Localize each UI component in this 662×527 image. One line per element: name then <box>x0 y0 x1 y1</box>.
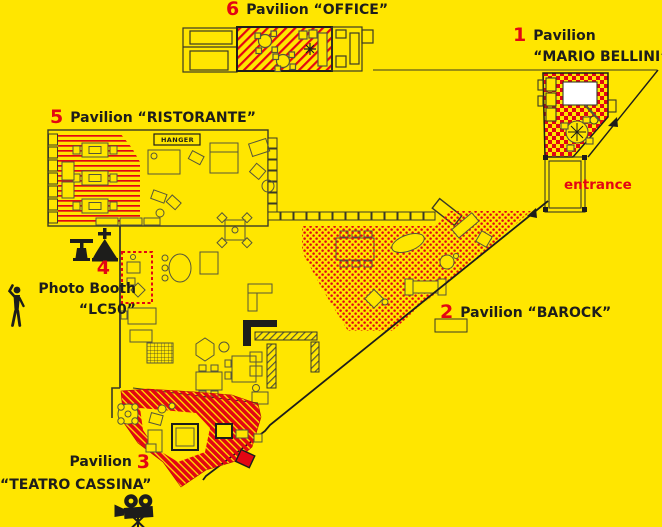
floor-plan-page: 6 Pavilion “OFFICE” 1 Pavilion “MARIO BE… <box>0 0 662 527</box>
pavilion-ristorante-title: Pavilion “RISTORANTE” <box>70 108 256 129</box>
pavilion-bellini-line1: Pavilion <box>533 26 662 47</box>
label-hanger: HANGER <box>155 135 200 145</box>
pavilion-bellini-title: Pavilion “MARIO BELLINI” <box>533 26 662 68</box>
pavilion-teatro-word: Pavilion <box>69 454 131 470</box>
photo-booth-line1: Photo Booth <box>20 279 136 300</box>
photo-booth-line2: “LC50” <box>20 300 136 321</box>
pavilion-bellini-number: 1 <box>513 26 526 45</box>
studio-lamp-icons <box>70 228 118 262</box>
label-entrance: entrance <box>564 177 632 193</box>
pavilion-ristorante-plan <box>58 133 274 248</box>
pavilion-teatro-name: “TEATRO CASSINA” <box>0 477 152 493</box>
pavilion-barock-number: 2 <box>440 303 453 322</box>
pavilion-barock-title: Pavilion “BAROCK” <box>460 303 611 324</box>
pavilion-bellini-line2: “MARIO BELLINI” <box>533 47 662 68</box>
label-pavilion-teatro-line2: “TEATRO CASSINA” <box>0 475 128 496</box>
label-pavilion-ristorante: 5 Pavilion “RISTORANTE” <box>50 108 256 129</box>
photo-booth-number-line: 4 <box>20 258 136 279</box>
pavilion-teatro-number: 3 <box>137 451 150 473</box>
label-photo-booth: 4 Photo Booth “LC50” <box>20 258 136 321</box>
label-pavilion-teatro-line1: Pavilion 3 <box>0 452 150 473</box>
film-camera-icon <box>115 494 154 527</box>
label-pavilion-barock: 2 Pavilion “BAROCK” <box>440 303 611 324</box>
label-pavilion-bellini: 1 Pavilion “MARIO BELLINI” <box>513 26 662 68</box>
pavilion-ristorante-number: 5 <box>50 108 63 127</box>
pavilion-office-number: 6 <box>226 0 239 19</box>
photo-booth-number: 4 <box>97 257 110 279</box>
pavilion-office-title: Pavilion “OFFICE” <box>246 0 388 21</box>
label-pavilion-office: 6 Pavilion “OFFICE” <box>226 0 388 21</box>
